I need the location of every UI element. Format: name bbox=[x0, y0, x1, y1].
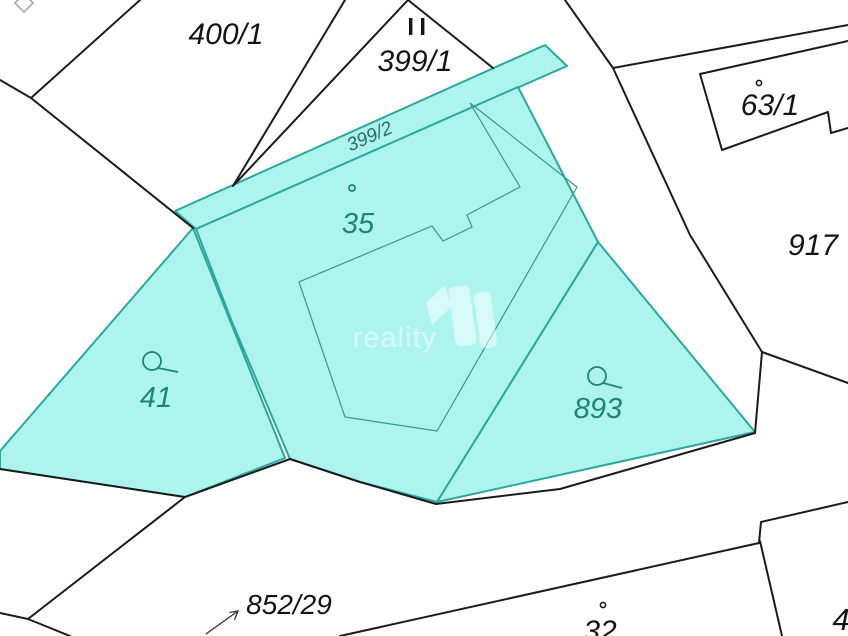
parcel-label-63-1: 63/1 bbox=[741, 89, 799, 122]
building-dot-32 bbox=[600, 602, 605, 607]
parcel-label-852-29: 852/29 bbox=[246, 589, 332, 620]
parcel-label-35: 35 bbox=[342, 208, 375, 240]
building-dot-63-1 bbox=[756, 80, 761, 85]
double-bar-symbol-399-1 bbox=[409, 18, 424, 35]
watermark-text: reality bbox=[353, 322, 437, 354]
parcel-label-893: 893 bbox=[574, 393, 622, 425]
parcel-label-400-1: 400/1 bbox=[188, 18, 263, 51]
parcel-label-41: 41 bbox=[140, 382, 172, 414]
survey-marker-diamond bbox=[15, 0, 33, 12]
label-arrow-852-29 bbox=[206, 611, 238, 634]
boundary-lines-southwest bbox=[0, 497, 185, 636]
parcel-label-32: 32 bbox=[583, 615, 617, 636]
parcel-label-917: 917 bbox=[788, 229, 839, 262]
parcel-label-399-1: 399/1 bbox=[377, 45, 452, 78]
cadastral-map: 400/1 399/1 399/2 35 63/1 917 41 893 852… bbox=[0, 0, 848, 636]
boundary-lines-northwest bbox=[0, 0, 193, 228]
cadastral-map-canvas: 400/1 399/1 399/2 35 63/1 917 41 893 852… bbox=[0, 0, 848, 636]
parcel-label-4: 4 bbox=[832, 602, 848, 636]
